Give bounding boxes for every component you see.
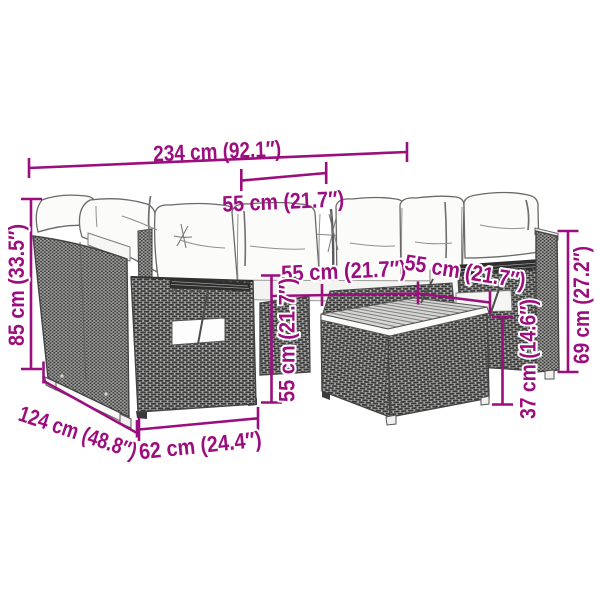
svg-text:85 cm (33.5″): 85 cm (33.5″)	[4, 224, 29, 346]
svg-text:234 cm (92.1″): 234 cm (92.1″)	[153, 136, 282, 166]
svg-text:55 cm (21.7″): 55 cm (21.7″)	[275, 278, 300, 402]
svg-text:69 cm (27.2″): 69 cm (27.2″)	[569, 246, 594, 364]
svg-text:37 cm (14.6″): 37 cm (14.6″)	[516, 299, 541, 419]
